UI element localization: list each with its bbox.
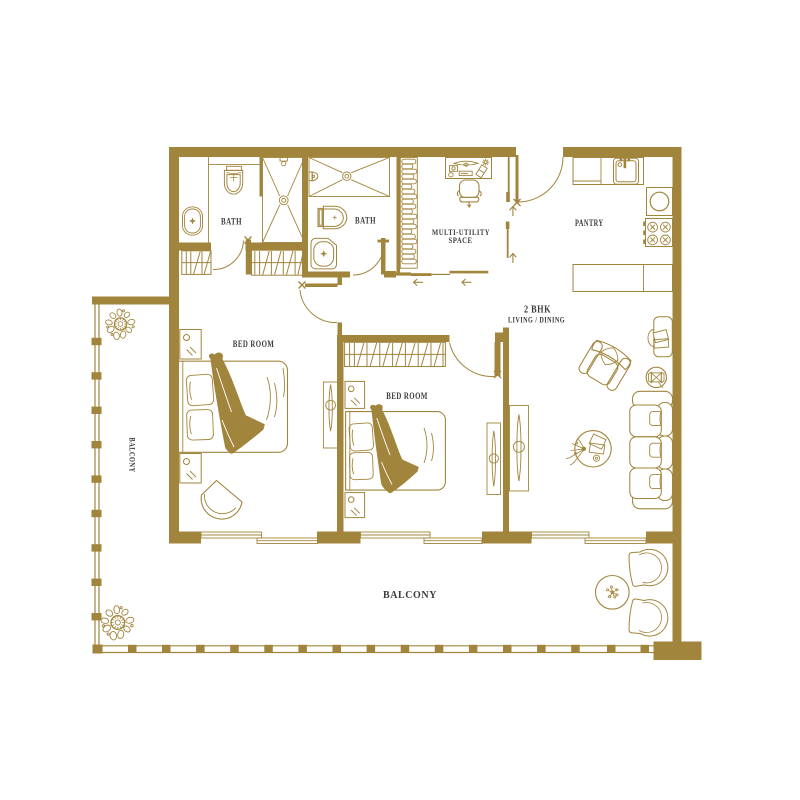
svg-text:BATH: BATH	[355, 216, 376, 226]
svg-text:SPACE: SPACE	[449, 235, 473, 245]
svg-text:BALCONY: BALCONY	[127, 438, 136, 473]
svg-text:BED ROOM: BED ROOM	[386, 391, 428, 401]
svg-text:BALCONY: BALCONY	[383, 590, 437, 601]
svg-text:BED ROOM: BED ROOM	[233, 339, 274, 349]
svg-text:BATH: BATH	[221, 216, 242, 226]
svg-text:LIVING / DINING: LIVING / DINING	[508, 315, 565, 325]
svg-text:PANTRY: PANTRY	[575, 218, 604, 228]
